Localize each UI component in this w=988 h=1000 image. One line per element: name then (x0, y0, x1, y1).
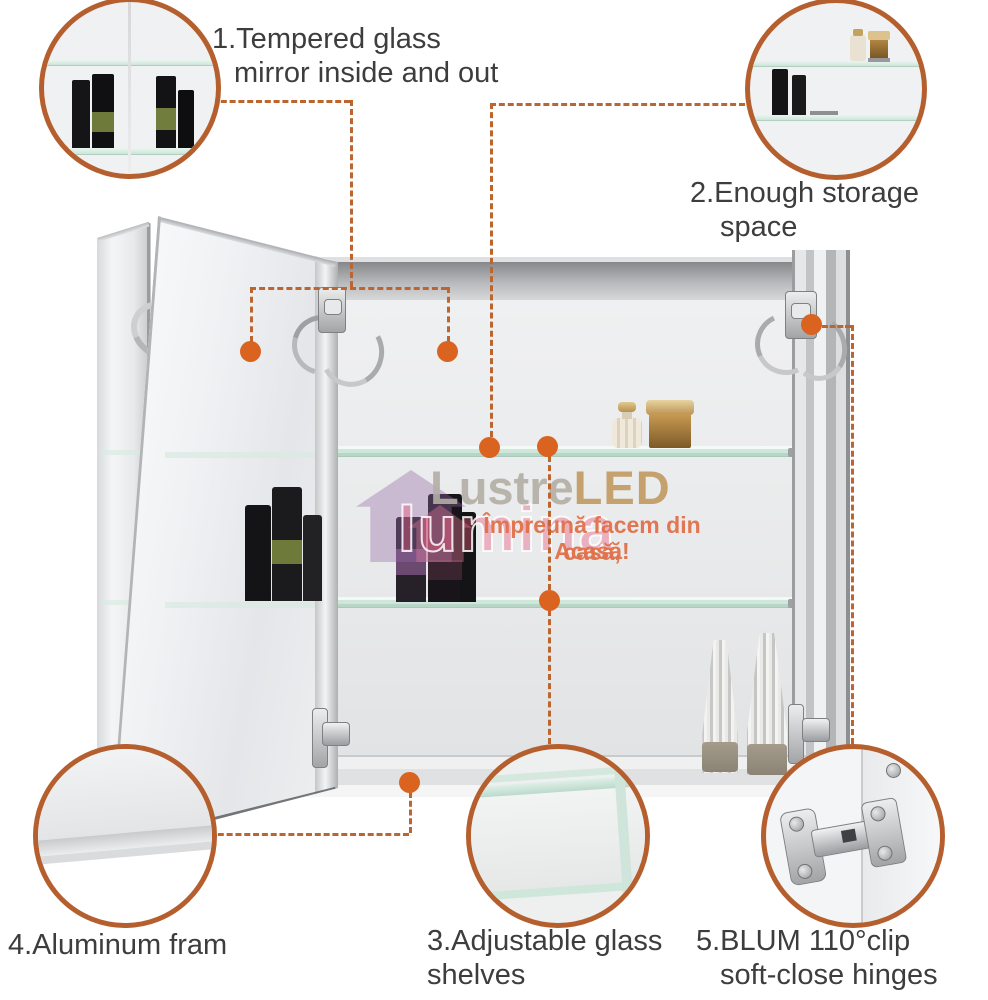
callout-storage-shelves-detail (745, 0, 927, 180)
connector-hinge (851, 325, 854, 744)
connector-mirror (212, 100, 350, 103)
mini-black-bottle (792, 75, 806, 115)
hinge-arm (802, 718, 830, 742)
perfume-cap (618, 402, 636, 412)
bottom-door-hinge (308, 706, 356, 774)
shelf-reflection (165, 452, 315, 458)
dot-storage (479, 437, 500, 458)
dot-frame (399, 772, 420, 793)
top-right-hinge (755, 285, 840, 375)
label-blum-hinges: 5.BLUM 110°clip soft-close hinges (696, 924, 938, 992)
mini-black-bottle (178, 90, 194, 148)
crystal-perfume-bottle (612, 418, 642, 448)
mini-glass-shelf (750, 61, 922, 67)
label-line: 1.Tempered glass (212, 22, 498, 56)
hinge-arm (322, 722, 350, 746)
callout-blum-hinge-detail (761, 744, 945, 928)
hinge-block (324, 299, 342, 315)
label-line: mirror inside and out (234, 56, 498, 90)
hinge-adjuster (841, 829, 857, 843)
mini-black-bottle (72, 80, 90, 148)
brand-accent: LED (574, 461, 671, 514)
perfume-base (702, 742, 738, 772)
label-adjustable-shelves: 3.Adjustable glass shelves (427, 924, 662, 992)
hinge-assembly (761, 744, 945, 928)
cream-jar-body (649, 414, 691, 448)
brand-primary: Lustre (430, 461, 574, 514)
product-infographic: lumina LustreLED Împreună facem din casă… (0, 0, 988, 1000)
shelf-bracket (868, 58, 890, 62)
connector-mirror (447, 287, 450, 342)
bottle-label (272, 540, 302, 564)
label-line: 5.BLUM 110°clip (696, 924, 938, 958)
callout-aluminum-frame-detail (33, 744, 217, 928)
mini-black-bottle (92, 74, 114, 148)
connector-mirror (350, 100, 353, 287)
connector-storage (490, 103, 493, 437)
shelf-reflection (165, 602, 315, 608)
label-tempered-glass: 1.Tempered glass mirror inside and out (212, 22, 498, 90)
mirror-seam (128, 2, 131, 174)
label-line: shelves (427, 958, 662, 992)
mini-perfume (850, 35, 866, 61)
callout-adjustable-glass-shelf-detail (466, 744, 650, 928)
callout-mirror-interior-detail (39, 0, 221, 179)
mini-glass-shelf (750, 115, 922, 121)
bottle-label (156, 108, 176, 130)
connector-hinge (822, 325, 851, 328)
dot-shelf-lower (539, 590, 560, 611)
reflected-black-bottle (245, 505, 271, 601)
connector-frame (409, 792, 412, 833)
panel-top-cap (97, 221, 149, 242)
shelf-bracket (810, 111, 838, 115)
reflected-black-bottle (303, 515, 322, 601)
connector-shelves (548, 610, 551, 744)
label-line: 2.Enough storage (690, 176, 919, 210)
label-storage-space: 2.Enough storage space (690, 176, 919, 244)
dot-hinge (801, 314, 822, 335)
bottle-label (92, 112, 114, 132)
dot-mirror-inside (240, 341, 261, 362)
shelf-reflection (101, 450, 145, 455)
label-line: space (720, 210, 919, 244)
connector-storage (490, 103, 745, 106)
cream-jar-lid (646, 400, 694, 415)
door-top-edge (155, 216, 336, 267)
label-aluminum-frame: 4.Aluminum fram (8, 928, 227, 962)
mini-jar-lid (868, 31, 890, 40)
top-door-hinge (290, 285, 375, 380)
label-line: 3.Adjustable glass (427, 924, 662, 958)
watermark-tagline-2: Acasă! (452, 538, 732, 565)
connector-mirror (250, 287, 253, 342)
label-line: soft-close hinges (720, 958, 938, 992)
connector-frame (209, 833, 409, 836)
dot-mirror-outside (437, 341, 458, 362)
connector-mirror (250, 287, 447, 290)
mini-black-bottle (772, 69, 788, 115)
mini-perfume-cap (853, 29, 863, 36)
connector-shelves (548, 456, 551, 590)
label-line: 4.Aluminum fram (8, 928, 227, 962)
dot-shelf-upper (537, 436, 558, 457)
